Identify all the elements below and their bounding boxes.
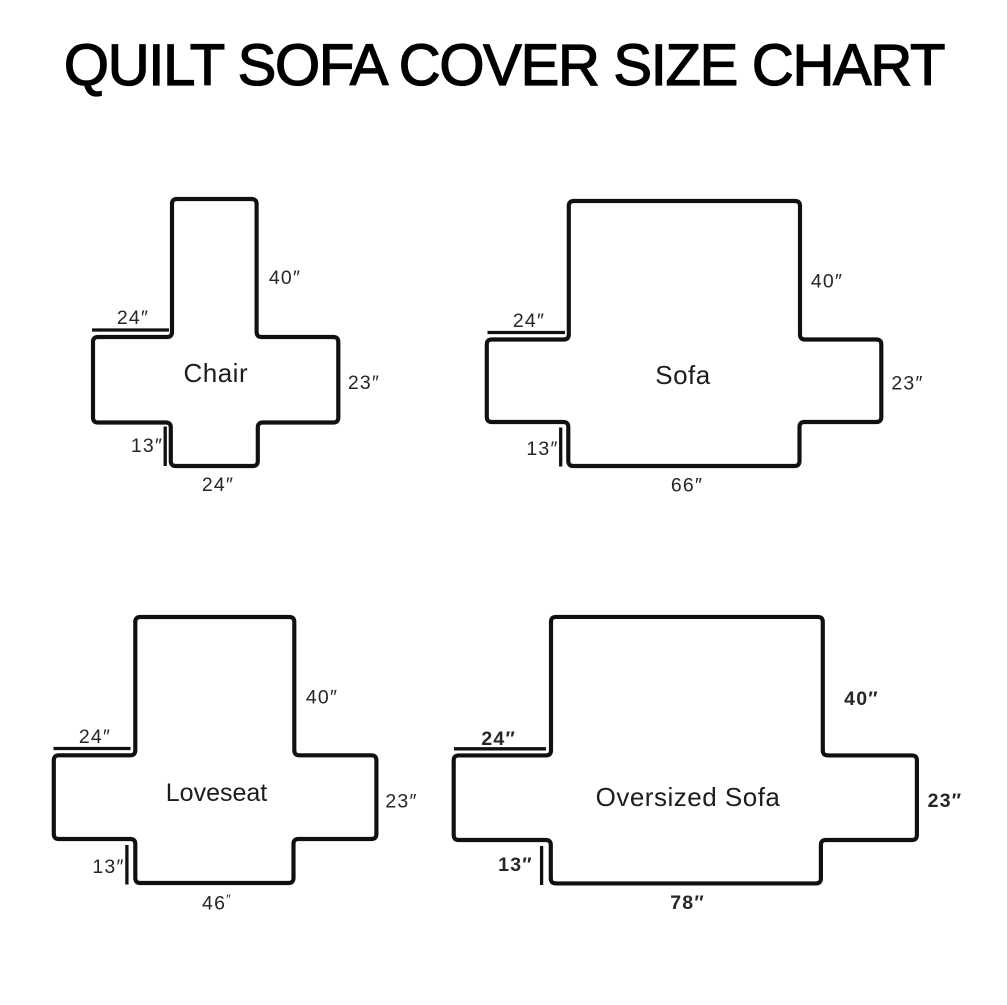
svg-text:23″: 23″ xyxy=(385,791,417,813)
svg-text:40″: 40″ xyxy=(306,687,338,709)
svg-text:13″: 13″ xyxy=(526,438,558,460)
svg-text:QUILT SOFA COVER SIZE CHART: QUILT SOFA COVER SIZE CHART xyxy=(64,33,945,98)
svg-text:13″: 13″ xyxy=(131,435,163,457)
svg-text:Loveseat: Loveseat xyxy=(166,779,268,807)
svg-text:23″: 23″ xyxy=(891,373,923,395)
svg-text:40″: 40″ xyxy=(811,271,843,293)
svg-text:78″: 78″ xyxy=(670,892,705,914)
svg-text:Chair: Chair xyxy=(183,358,248,388)
svg-text:24″: 24″ xyxy=(117,307,149,329)
svg-text:Sofa: Sofa xyxy=(655,360,711,390)
svg-text:24″: 24″ xyxy=(202,474,234,496)
svg-text:24″: 24″ xyxy=(481,728,516,750)
svg-text:23″: 23″ xyxy=(928,790,963,812)
svg-text:13″: 13″ xyxy=(498,854,533,876)
svg-text:40″: 40″ xyxy=(844,688,879,710)
svg-text:13″: 13″ xyxy=(92,856,124,878)
svg-text:24″: 24″ xyxy=(79,726,111,748)
svg-text:Oversized Sofa: Oversized Sofa xyxy=(596,782,781,812)
svg-text:66″: 66″ xyxy=(671,475,703,497)
svg-text:40″: 40″ xyxy=(269,267,301,289)
svg-text:24″: 24″ xyxy=(513,310,545,332)
svg-text:23″: 23″ xyxy=(348,372,380,394)
